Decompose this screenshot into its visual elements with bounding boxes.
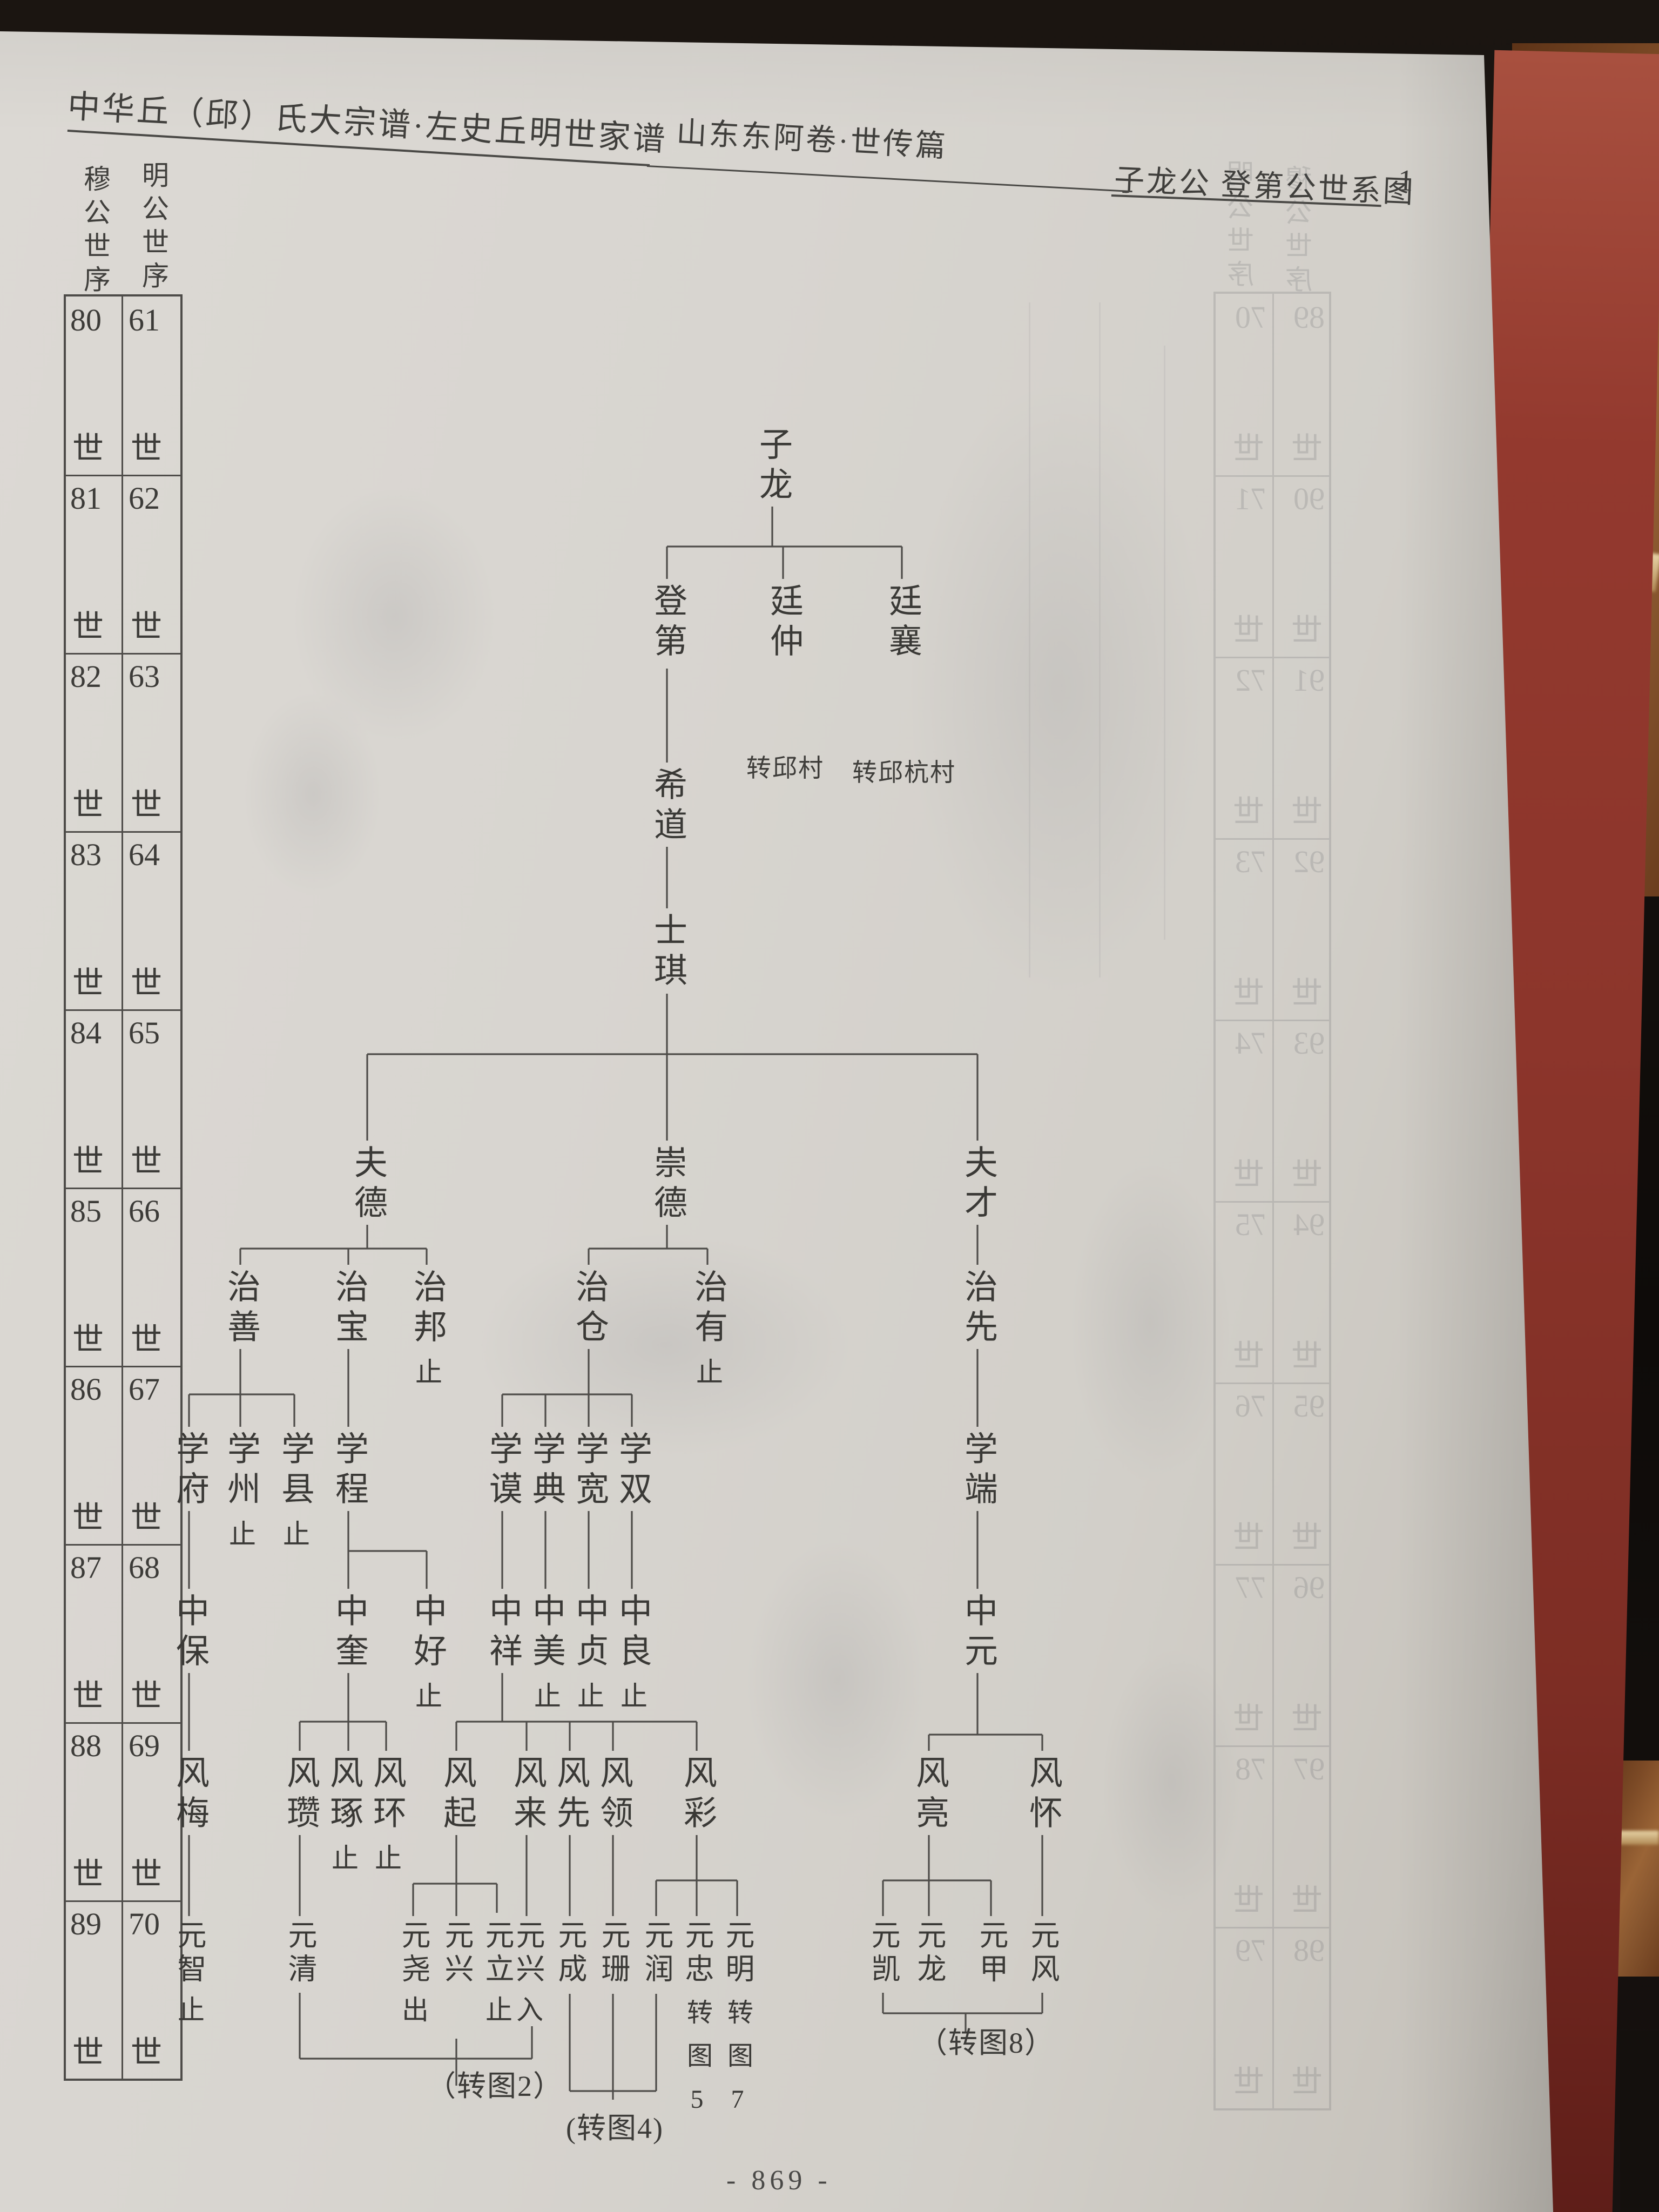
- end-of-line-mark: 止: [225, 1520, 255, 1552]
- person-name: 中元: [959, 1593, 996, 1673]
- node-fengxian: 风先: [553, 1755, 586, 1835]
- person-name: 元润: [640, 1920, 672, 1987]
- annotation-to-chart-2: （转图2）: [427, 2062, 563, 2105]
- node-zhongliang: 中良止: [615, 1593, 649, 1714]
- ghost-shi: 世: [1233, 605, 1264, 650]
- person-name: 廷仲: [765, 583, 801, 663]
- node-yuanrun: 元润: [642, 1920, 671, 1987]
- person-name: 学府: [171, 1431, 207, 1511]
- to-chart-7-mark: 转图7: [723, 1999, 752, 2131]
- node-yuanli: 元立止: [482, 1920, 511, 2028]
- node-fengqi: 风起: [440, 1755, 473, 1835]
- ghost-number: 94: [1293, 1206, 1325, 1243]
- end-of-line-mark: 止: [412, 1682, 442, 1714]
- note-tingzhong-moved: 转邱村: [746, 748, 824, 784]
- person-name: 风起: [438, 1755, 475, 1835]
- connector-chongde-children: [589, 1225, 707, 1265]
- person-name: 元忠: [680, 1920, 713, 1987]
- node-xuedian: 学典: [529, 1431, 562, 1511]
- person-name: 治邦: [408, 1269, 445, 1349]
- node-xuekuan: 学宽: [572, 1431, 605, 1511]
- end-of-line-mark: 止: [482, 1995, 512, 2028]
- ghost-row: 9677世世: [1216, 1564, 1329, 1747]
- node-zhiyou: 治有止: [691, 1269, 724, 1390]
- person-name: 中良: [613, 1593, 650, 1673]
- person-name: 治仓: [570, 1269, 607, 1349]
- node-yuanjia: 元甲: [976, 1920, 1006, 1987]
- node-xuefu: 学府: [172, 1431, 206, 1511]
- ghost-shi: 世: [1291, 1512, 1323, 1557]
- node-zhibao: 治宝: [332, 1269, 365, 1349]
- ghost-number: 89: [1293, 299, 1325, 335]
- ghost-row: 9172世世: [1216, 657, 1329, 840]
- ghost-shi: 世: [1291, 1149, 1323, 1195]
- person-name: 元兴: [440, 1920, 473, 1987]
- connector-fude-children: [240, 1225, 427, 1265]
- node-zhongbao: 中保: [172, 1593, 206, 1673]
- node-fengliang: 风亮: [912, 1755, 946, 1835]
- ghost-shi: 世: [1291, 423, 1323, 469]
- ghost-number: 96: [1293, 1569, 1325, 1606]
- person-name: 治先: [959, 1269, 996, 1349]
- ghost-number: 71: [1235, 481, 1266, 517]
- node-tingxiang: 廷襄: [885, 583, 919, 663]
- node-zhongkui: 中奎: [332, 1593, 365, 1673]
- ghost-row: 9879世世: [1216, 1927, 1329, 2108]
- ghost-shi: 世: [1233, 1149, 1264, 1195]
- node-fengzhuo: 风琢止: [326, 1755, 360, 1876]
- person-name: 元尧: [397, 1920, 429, 1987]
- ghost-number: 76: [1235, 1388, 1266, 1424]
- person-name: 风亮: [911, 1755, 947, 1835]
- ghost-table-grid: 8970世世 9071世世 9172世世 9273世世 9374世世 9475世…: [1213, 292, 1331, 2110]
- person-name: 风梅: [171, 1755, 207, 1835]
- node-zhongmei: 中美止: [529, 1593, 562, 1714]
- page-number: - 869 -: [726, 2164, 832, 2196]
- node-zhixian: 治先: [961, 1269, 994, 1349]
- end-of-line-mark: 止: [412, 1358, 442, 1390]
- person-name: 廷襄: [884, 583, 920, 663]
- node-chongde: 崇德: [650, 1145, 684, 1225]
- adopted-in-mark: 入: [512, 1995, 543, 2028]
- person-name: 治有: [689, 1269, 726, 1349]
- ghost-row: 9576世世: [1216, 1382, 1329, 1566]
- person-name: 风领: [595, 1755, 631, 1835]
- person-name: 风怀: [1024, 1755, 1061, 1835]
- end-of-line-mark: 止: [371, 1844, 401, 1876]
- ghost-number: 98: [1293, 1932, 1325, 1968]
- connector-zhongyuan-children: [929, 1673, 1042, 1751]
- person-name: 元风: [1026, 1920, 1058, 1987]
- ghost-number: 79: [1235, 1932, 1266, 1968]
- ghost-shi: 世: [1291, 968, 1323, 1013]
- person-name: 中美: [527, 1593, 564, 1673]
- person-name: 元清: [284, 1920, 316, 1987]
- ghost-shi: 世: [1233, 786, 1264, 832]
- node-yuanxing: 元兴: [442, 1920, 471, 1987]
- bracket-to-chart-4: [570, 1994, 656, 2100]
- person-name: 元智: [173, 1920, 205, 1987]
- person-name: 中祥: [484, 1593, 521, 1673]
- ghost-row: 9475世世: [1216, 1201, 1329, 1384]
- ghost-number: 90: [1293, 481, 1325, 517]
- person-name: 风先: [551, 1755, 588, 1835]
- person-name: 登第: [649, 583, 685, 663]
- node-xuexian: 学县止: [278, 1431, 311, 1552]
- person-name: 元珊: [597, 1920, 629, 1987]
- node-xuezhou: 学州止: [224, 1431, 257, 1552]
- connector-zilong-children: [667, 507, 902, 579]
- end-of-line-mark: 止: [617, 1682, 647, 1714]
- person-name: 中贞: [570, 1593, 607, 1673]
- ghost-number: 93: [1293, 1025, 1325, 1061]
- ghost-shi: 世: [1233, 2056, 1264, 2102]
- ghost-row: 9071世世: [1216, 475, 1329, 658]
- person-name: 学州: [222, 1431, 259, 1511]
- adopted-out-mark: 出: [398, 1995, 428, 2028]
- end-of-line-mark: 止: [692, 1358, 723, 1390]
- node-fengling: 风领: [596, 1755, 630, 1835]
- ghost-shi: 世: [1291, 1331, 1323, 1376]
- person-name: 风琢: [325, 1755, 361, 1835]
- ghost-shi: 世: [1233, 1512, 1264, 1557]
- node-xueduan: 学端: [961, 1431, 994, 1511]
- node-yuanqing: 元清: [285, 1920, 314, 1987]
- annotation-to-chart-8: （转图8）: [918, 2019, 1055, 2061]
- ghost-shi: 世: [1233, 1331, 1264, 1376]
- node-fenghuan: 风环止: [369, 1755, 403, 1876]
- node-fengmei: 风梅: [172, 1755, 206, 1835]
- node-zhibang: 治邦止: [410, 1269, 443, 1390]
- ghost-row: 8970世世: [1216, 294, 1329, 477]
- to-chart-5-mark: 转图5: [683, 1999, 711, 2131]
- person-name: 学端: [959, 1431, 996, 1511]
- end-of-line-mark: 止: [530, 1682, 561, 1714]
- end-of-line-mark: 止: [279, 1520, 309, 1552]
- node-yuanshan: 元珊: [598, 1920, 628, 1987]
- person-name: 中好: [408, 1593, 445, 1673]
- node-zhongzhen: 中贞止: [572, 1593, 605, 1714]
- ghost-row: 9374世世: [1216, 1020, 1329, 1203]
- person-name: 风彩: [678, 1755, 715, 1835]
- node-xueshuang: 学双: [615, 1431, 649, 1511]
- ghost-number: 74: [1235, 1025, 1266, 1061]
- person-name: 学典: [527, 1431, 564, 1511]
- person-name: 学双: [613, 1431, 650, 1511]
- node-xuecheng: 学程: [332, 1431, 365, 1511]
- node-yuanlong: 元龙: [914, 1920, 943, 1987]
- photo-of-genealogy-page: 中华丘（邱）氏大宗谱·左史丘明世家谱 山东东阿卷·世传篇 子龙公 登第公世系图 …: [0, 0, 1659, 2212]
- node-xidao: 希道: [650, 767, 684, 847]
- ghost-shi: 世: [1291, 1875, 1323, 1920]
- ghost-shi: 世: [1291, 786, 1323, 832]
- end-of-line-mark: 止: [174, 1995, 204, 2028]
- ghost-row: 9778世世: [1216, 1745, 1329, 1928]
- node-fengcai: 风彩: [680, 1755, 713, 1835]
- node-zilong: 子龙: [756, 427, 789, 507]
- connector-zhishan-children: [189, 1349, 294, 1427]
- ghost-shi: 世: [1291, 1694, 1323, 1739]
- node-yuanxing-adopted: 元兴入: [513, 1920, 542, 2028]
- connector-shiqi-children: [367, 994, 977, 1141]
- person-name: 元凯: [867, 1920, 899, 1987]
- ghost-number: 77: [1235, 1569, 1266, 1606]
- node-yuanming: 元明转图7: [723, 1920, 752, 2131]
- connector-zhicang-children: [502, 1349, 632, 1427]
- ghost-shi: 世: [1291, 605, 1323, 650]
- end-of-line-mark: 止: [574, 1682, 604, 1714]
- person-name: 学程: [330, 1431, 367, 1511]
- annotation-to-chart-4: (转图4): [566, 2104, 664, 2147]
- node-zhongxiang: 中祥: [485, 1593, 519, 1673]
- node-yuankai: 元凯: [868, 1920, 898, 1987]
- connector-xuecheng-children: [348, 1511, 427, 1589]
- node-zhicang: 治仓: [572, 1269, 605, 1349]
- person-name: 风环: [368, 1755, 404, 1835]
- connector-fengliang-children: [883, 1835, 991, 1916]
- ghost-number: 92: [1293, 844, 1325, 880]
- node-zhishan: 治善: [224, 1269, 257, 1349]
- node-fucai: 夫才: [961, 1145, 994, 1225]
- person-name: 元成: [554, 1920, 586, 1987]
- person-name: 学宽: [570, 1431, 607, 1511]
- ghost-number: 73: [1235, 844, 1266, 880]
- person-name: 元龙: [913, 1920, 945, 1987]
- ghost-number: 91: [1293, 662, 1325, 698]
- node-zhonghao: 中好止: [410, 1593, 443, 1714]
- node-yuanzhi: 元智止: [174, 1920, 204, 2028]
- person-name: 元立: [481, 1920, 513, 1987]
- ghost-shi: 世: [1291, 2056, 1323, 2102]
- ghost-number: 95: [1293, 1388, 1325, 1424]
- connector-xue-to-zhong: [502, 1511, 632, 1589]
- ghost-number: 72: [1235, 662, 1266, 698]
- person-name: 学谟: [484, 1431, 521, 1511]
- node-fenghuai: 风怀: [1026, 1755, 1059, 1835]
- person-name: 学县: [276, 1431, 313, 1511]
- note-tingxiang-moved: 转邱杭村: [852, 753, 956, 788]
- person-name: 风来: [508, 1755, 545, 1835]
- node-zhongyuan: 中元: [961, 1593, 994, 1673]
- node-dengdi: 登第: [650, 583, 684, 663]
- person-name: 中保: [171, 1593, 207, 1673]
- end-of-line-mark: 止: [328, 1844, 358, 1876]
- bleedthrough-generation-table: 穆公世序 明公世序 8970世世 9071世世 9172世世 9273世世 93…: [1207, 159, 1337, 2157]
- ghost-header-mu: 穆公世序: [1282, 165, 1320, 299]
- person-name: 治宝: [330, 1269, 367, 1349]
- node-fengzan: 风瓒: [283, 1755, 316, 1835]
- person-name: 子龙: [754, 427, 791, 507]
- node-fude: 夫德: [350, 1145, 384, 1225]
- person-name: 元明: [721, 1920, 753, 1987]
- person-name: 中奎: [330, 1593, 367, 1673]
- ghost-number: 97: [1293, 1751, 1325, 1787]
- connector-fengqi-children: [413, 1835, 497, 1916]
- node-yuanzhong: 元忠转图5: [682, 1920, 711, 2131]
- person-name: 希道: [649, 767, 685, 847]
- node-xuemo: 学谟: [485, 1431, 519, 1511]
- person-name: 夫德: [349, 1145, 386, 1225]
- person-name: 夫才: [959, 1145, 996, 1225]
- person-name: 治善: [222, 1269, 259, 1349]
- ghost-shi: 世: [1233, 1694, 1264, 1739]
- node-tingzhong: 廷仲: [766, 583, 800, 663]
- node-yuancheng: 元成: [555, 1920, 584, 1987]
- person-name: 元兴: [511, 1920, 544, 1987]
- node-yuanfeng: 元风: [1028, 1920, 1057, 1987]
- ghost-shi: 世: [1233, 1875, 1264, 1920]
- connector-fengcai-children: [656, 1835, 737, 1916]
- tree-connector-lines: [0, 0, 1659, 2212]
- ghost-shi: 世: [1233, 968, 1264, 1013]
- ghost-number: 75: [1235, 1206, 1266, 1243]
- person-name: 士琪: [649, 913, 685, 993]
- person-name: 元甲: [975, 1920, 1007, 1987]
- person-name: 崇德: [649, 1145, 685, 1225]
- ghost-number: 78: [1235, 1751, 1266, 1787]
- ghost-row: 9273世世: [1216, 838, 1329, 1021]
- connector-zhongkui-children: [300, 1673, 386, 1751]
- node-fenglai: 风来: [510, 1755, 543, 1835]
- node-shiqi: 士琪: [650, 913, 684, 993]
- ghost-header-ming: 明公世序: [1223, 159, 1262, 293]
- node-yuanyao: 元尧出: [399, 1920, 428, 2028]
- ghost-number: 70: [1235, 299, 1266, 335]
- ghost-shi: 世: [1233, 423, 1264, 469]
- person-name: 风瓒: [281, 1755, 318, 1835]
